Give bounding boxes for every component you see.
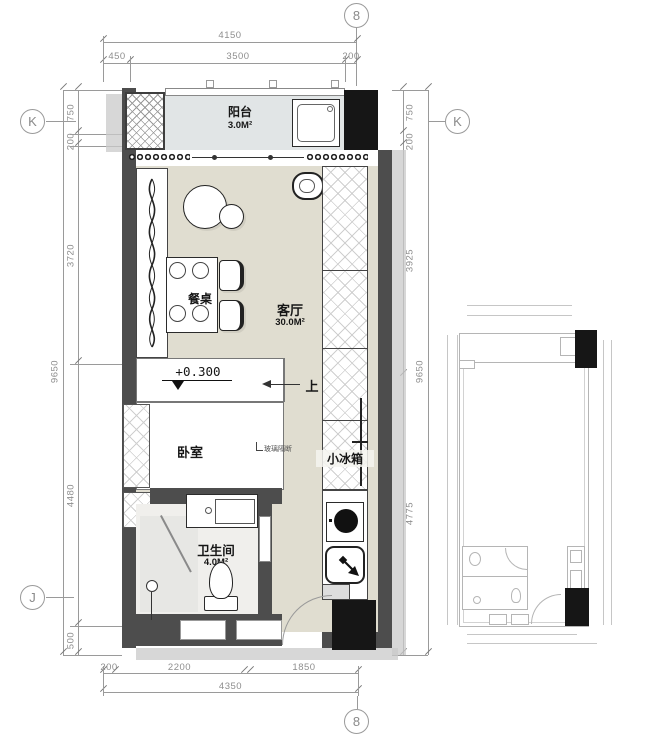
grid-leader xyxy=(428,121,445,122)
dim-right-seg4: 4775 xyxy=(405,496,416,532)
fridge-label: 小冰箱 xyxy=(316,450,374,467)
level-label: +0.300 xyxy=(158,364,238,379)
mini-toilet xyxy=(511,588,521,603)
dim-tick xyxy=(75,83,82,90)
dim-left-seg4: 4480 xyxy=(66,478,77,514)
curtain-symbol-right xyxy=(306,151,368,163)
dim-left-overall: 9650 xyxy=(50,354,61,390)
window-mullion xyxy=(206,80,214,88)
grid-label: K xyxy=(28,114,37,129)
grid-bubble-right-K: K xyxy=(445,109,470,134)
chair xyxy=(219,260,244,291)
grid-label: 8 xyxy=(353,8,360,23)
wall-basin xyxy=(292,172,324,200)
level-triangle-icon xyxy=(172,381,184,390)
place-setting xyxy=(192,262,209,279)
ext-line xyxy=(70,626,122,627)
dim-right-overall: 9650 xyxy=(415,354,426,390)
bottom-wall-inset xyxy=(180,620,226,640)
dim-top-overall: 4150 xyxy=(103,30,357,41)
grid-label: J xyxy=(29,590,36,605)
sliding-door-stop xyxy=(268,155,273,160)
cooktop-burner xyxy=(334,509,358,533)
chair xyxy=(219,300,244,331)
sliding-door-stop xyxy=(212,155,217,160)
column-hatched-topleft xyxy=(125,92,165,150)
dim-bottom-overall: 4350 xyxy=(103,681,358,692)
grid-bubble-bottom-8: 8 xyxy=(344,709,369,734)
toilet-bowl xyxy=(209,562,233,599)
platform-divider xyxy=(284,358,285,402)
cabinet-divider xyxy=(322,348,368,349)
mini-wall-notch xyxy=(459,360,475,369)
mini-dim-line xyxy=(457,335,458,625)
mini-dim-line xyxy=(611,340,612,625)
place-setting xyxy=(169,262,186,279)
dim-left-seg3: 3720 xyxy=(66,238,77,274)
dim-line xyxy=(103,692,358,693)
dim-bottom-seg3: 1850 xyxy=(250,662,358,673)
mini-kitchen-box xyxy=(570,570,582,590)
balcony-window xyxy=(165,88,345,96)
mini-bottom-window xyxy=(511,614,529,625)
closet-hatched xyxy=(123,404,150,488)
cooktop-knob xyxy=(329,519,332,522)
column-black-topright xyxy=(344,90,378,150)
basin-bowl xyxy=(299,179,315,193)
mini-kitchen-box xyxy=(570,550,582,563)
glass-partition-note: 玻璃隔断 xyxy=(264,444,292,454)
tv-cabinet xyxy=(136,168,168,358)
up-arrow-line xyxy=(268,384,300,385)
ext-line xyxy=(130,56,131,82)
up-arrow-head-icon xyxy=(262,380,271,388)
dim-top-seg2: 3500 xyxy=(131,51,345,62)
sink-drain-arrow-icon xyxy=(328,549,362,581)
pouf-small xyxy=(219,204,244,229)
dim-line xyxy=(428,90,429,655)
grid-leader-bottom xyxy=(357,696,358,709)
window-mullion xyxy=(269,80,277,88)
grid-bubble-left-K: K xyxy=(20,109,45,134)
cooktop xyxy=(326,502,364,542)
ext-line xyxy=(103,666,104,696)
dim-tick xyxy=(60,83,67,90)
mini-dim-line xyxy=(447,335,448,625)
mini-dim-line xyxy=(467,315,572,316)
mini-plan xyxy=(437,300,617,660)
floor-drain xyxy=(146,580,158,592)
place-setting xyxy=(192,305,209,322)
grid-bubble-top-8: 8 xyxy=(344,3,369,28)
grid-label: 8 xyxy=(353,714,360,729)
mini-bath-divider xyxy=(462,576,528,577)
kitchen-sink xyxy=(325,546,365,584)
ext-line xyxy=(63,90,122,91)
wall-shadow xyxy=(106,94,122,152)
mini-dim-line xyxy=(603,340,604,625)
dim-tick xyxy=(400,83,407,90)
ext-line xyxy=(392,90,428,91)
mini-dim-line xyxy=(467,643,597,644)
vanity-counter xyxy=(186,494,258,528)
curtain-symbol-left xyxy=(128,151,190,163)
ext-line xyxy=(103,36,104,82)
mini-bottom-window xyxy=(489,614,507,625)
dim-line xyxy=(103,42,357,43)
grid-label: K xyxy=(453,114,462,129)
faucet xyxy=(205,507,212,514)
wall-shadow xyxy=(392,150,406,655)
cabinet-handle-bar xyxy=(352,441,368,443)
place-setting xyxy=(169,305,186,322)
washing-machine xyxy=(292,99,340,147)
mini-dim-line xyxy=(467,305,572,306)
window-mullion xyxy=(331,80,339,88)
bedroom-label: 卧室 xyxy=(160,442,220,461)
vanity-basin xyxy=(215,499,255,524)
mini-dim-line xyxy=(467,634,577,635)
balcony-area-label: 3.0M² xyxy=(190,120,290,131)
wall-right xyxy=(378,150,392,648)
dim-line xyxy=(103,673,358,674)
ext-line xyxy=(345,56,346,82)
bottom-wall-inset xyxy=(236,620,282,640)
washing-machine-knob xyxy=(327,106,333,112)
mini-drain xyxy=(473,596,481,604)
dim-line xyxy=(103,63,357,64)
mini-column-topright xyxy=(575,330,597,368)
wall-left xyxy=(122,88,136,648)
dim-right-seg2: 200 xyxy=(405,124,416,160)
dim-line xyxy=(63,90,64,655)
ext-line xyxy=(358,666,359,696)
dim-bottom-seg2: 2200 xyxy=(115,662,244,673)
dim-tick xyxy=(425,83,432,90)
dim-line xyxy=(78,90,79,655)
up-label: 上 xyxy=(302,376,322,395)
ext-line xyxy=(63,655,122,656)
cabinet-divider xyxy=(322,270,368,271)
decor-wave-icon xyxy=(141,175,163,351)
balcony-label: 阳台 xyxy=(190,103,290,120)
sliding-door-line xyxy=(192,157,304,158)
bathroom-door-leaf xyxy=(259,516,271,562)
floor-plan-canvas: 8 4150 450 3500 200 K J 9650 750 200 372… xyxy=(0,0,660,751)
glass-partition-bracket xyxy=(256,442,263,451)
column-black-bottomright xyxy=(332,600,376,650)
grid-leader xyxy=(46,597,74,598)
grid-bubble-left-J: J xyxy=(20,585,45,610)
shower-stand xyxy=(151,592,152,620)
dim-left-seg2: 200 xyxy=(66,124,77,160)
mini-sink xyxy=(469,552,481,566)
dim-right-seg3: 3925 xyxy=(405,243,416,279)
ext-line xyxy=(70,364,122,365)
mini-column-bottomright xyxy=(565,588,589,626)
